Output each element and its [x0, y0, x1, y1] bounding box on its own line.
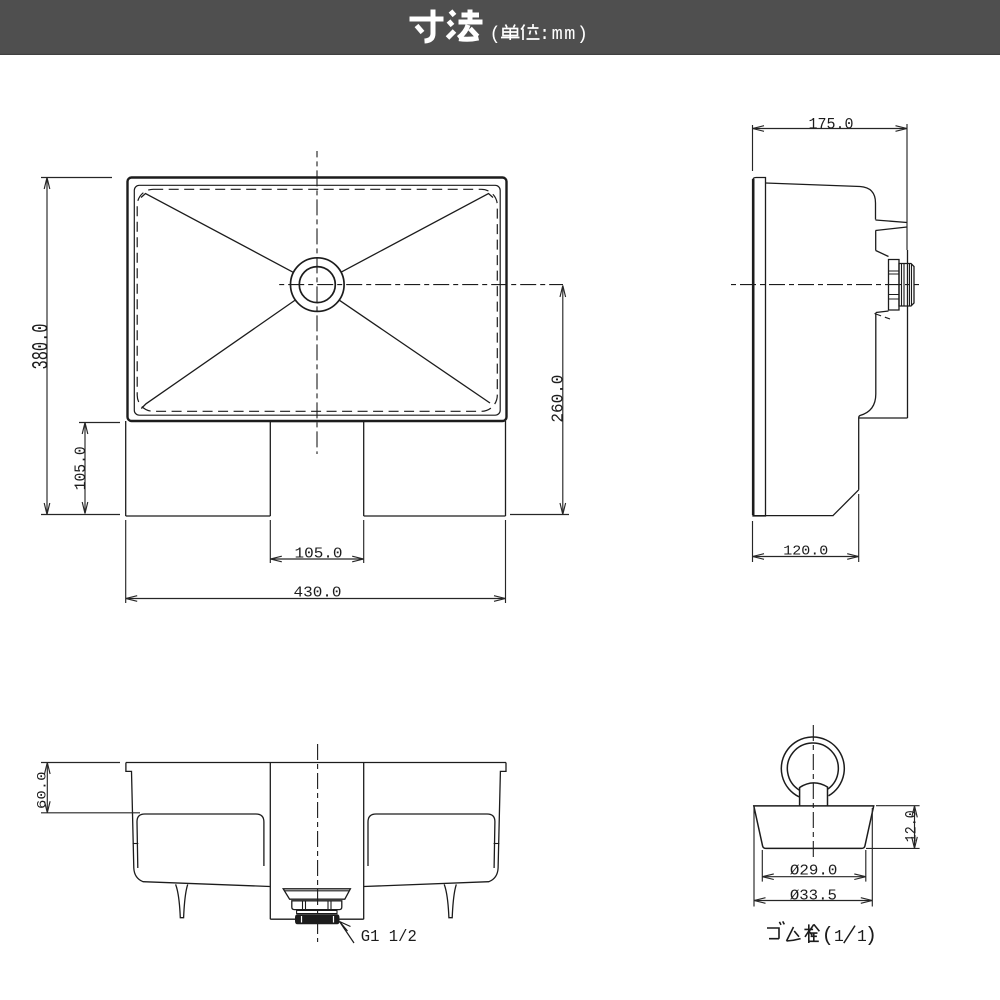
svg-text:120.0: 120.0: [783, 544, 828, 560]
svg-text:175.0: 175.0: [809, 115, 854, 133]
svg-text:380.0: 380.0: [29, 324, 55, 370]
svg-text:Ø29.0: Ø29.0: [790, 864, 838, 880]
svg-text:430.0: 430.0: [294, 585, 342, 602]
svg-text:260.0: 260.0: [548, 375, 567, 423]
svg-text::mm): :mm): [539, 24, 588, 45]
svg-text:Ø33.5: Ø33.5: [790, 888, 837, 904]
svg-text:105.0: 105.0: [72, 446, 90, 490]
svg-text:(: (: [490, 24, 501, 45]
svg-text:105.0: 105.0: [295, 546, 343, 563]
svg-text:1: 1: [834, 927, 844, 946]
svg-text:G1 1/2: G1 1/2: [361, 928, 417, 947]
svg-text:12.0: 12.0: [903, 810, 921, 842]
svg-text:): ): [865, 925, 877, 948]
svg-text:(: (: [822, 925, 834, 948]
svg-text:60.0: 60.0: [35, 772, 50, 810]
